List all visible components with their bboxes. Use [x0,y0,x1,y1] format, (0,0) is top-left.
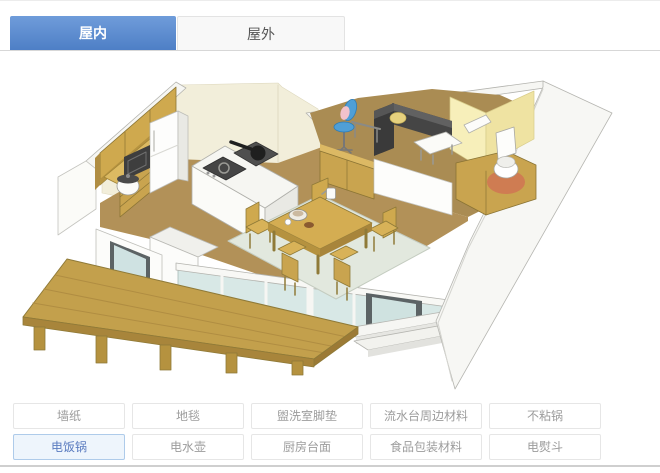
product-button-carpet[interactable]: 地毯 [132,403,244,429]
home-interior-illustration [0,56,660,396]
refrigerator [150,111,178,193]
product-button-kettle[interactable]: 电水壶 [132,434,244,460]
tab-bar: 屋内 屋外 [0,1,660,51]
page: 屋内 屋外 [0,0,660,473]
tab-indoor[interactable]: 屋内 [10,16,176,50]
product-button-rice-cooker[interactable]: 电饭锅 [13,434,125,460]
sofa-cushion [390,113,406,124]
frying-pan [251,146,266,161]
product-button-washroom-mat[interactable]: 盥洗室脚垫 [251,403,363,429]
product-button-iron[interactable]: 电熨斗 [489,434,601,460]
product-button-sink-materials[interactable]: 流水台周边材料 [370,403,482,429]
product-button-grid: 墙纸 地毯 盥洗室脚垫 流水台周边材料 不粘锅 电饭锅 电水壶 厨房台面 食品包… [13,403,601,460]
outer-wall-left [58,161,96,235]
product-button-food-packaging[interactable]: 食品包装材料 [370,434,482,460]
tab-outdoor[interactable]: 屋外 [177,16,345,50]
product-button-wallpaper[interactable]: 墙纸 [13,403,125,429]
product-button-nonstick-pan[interactable]: 不粘锅 [489,403,601,429]
toilet-tank [496,127,516,159]
bottom-divider [0,465,660,467]
product-button-countertop[interactable]: 厨房台面 [251,434,363,460]
rice-cooker [117,174,139,195]
